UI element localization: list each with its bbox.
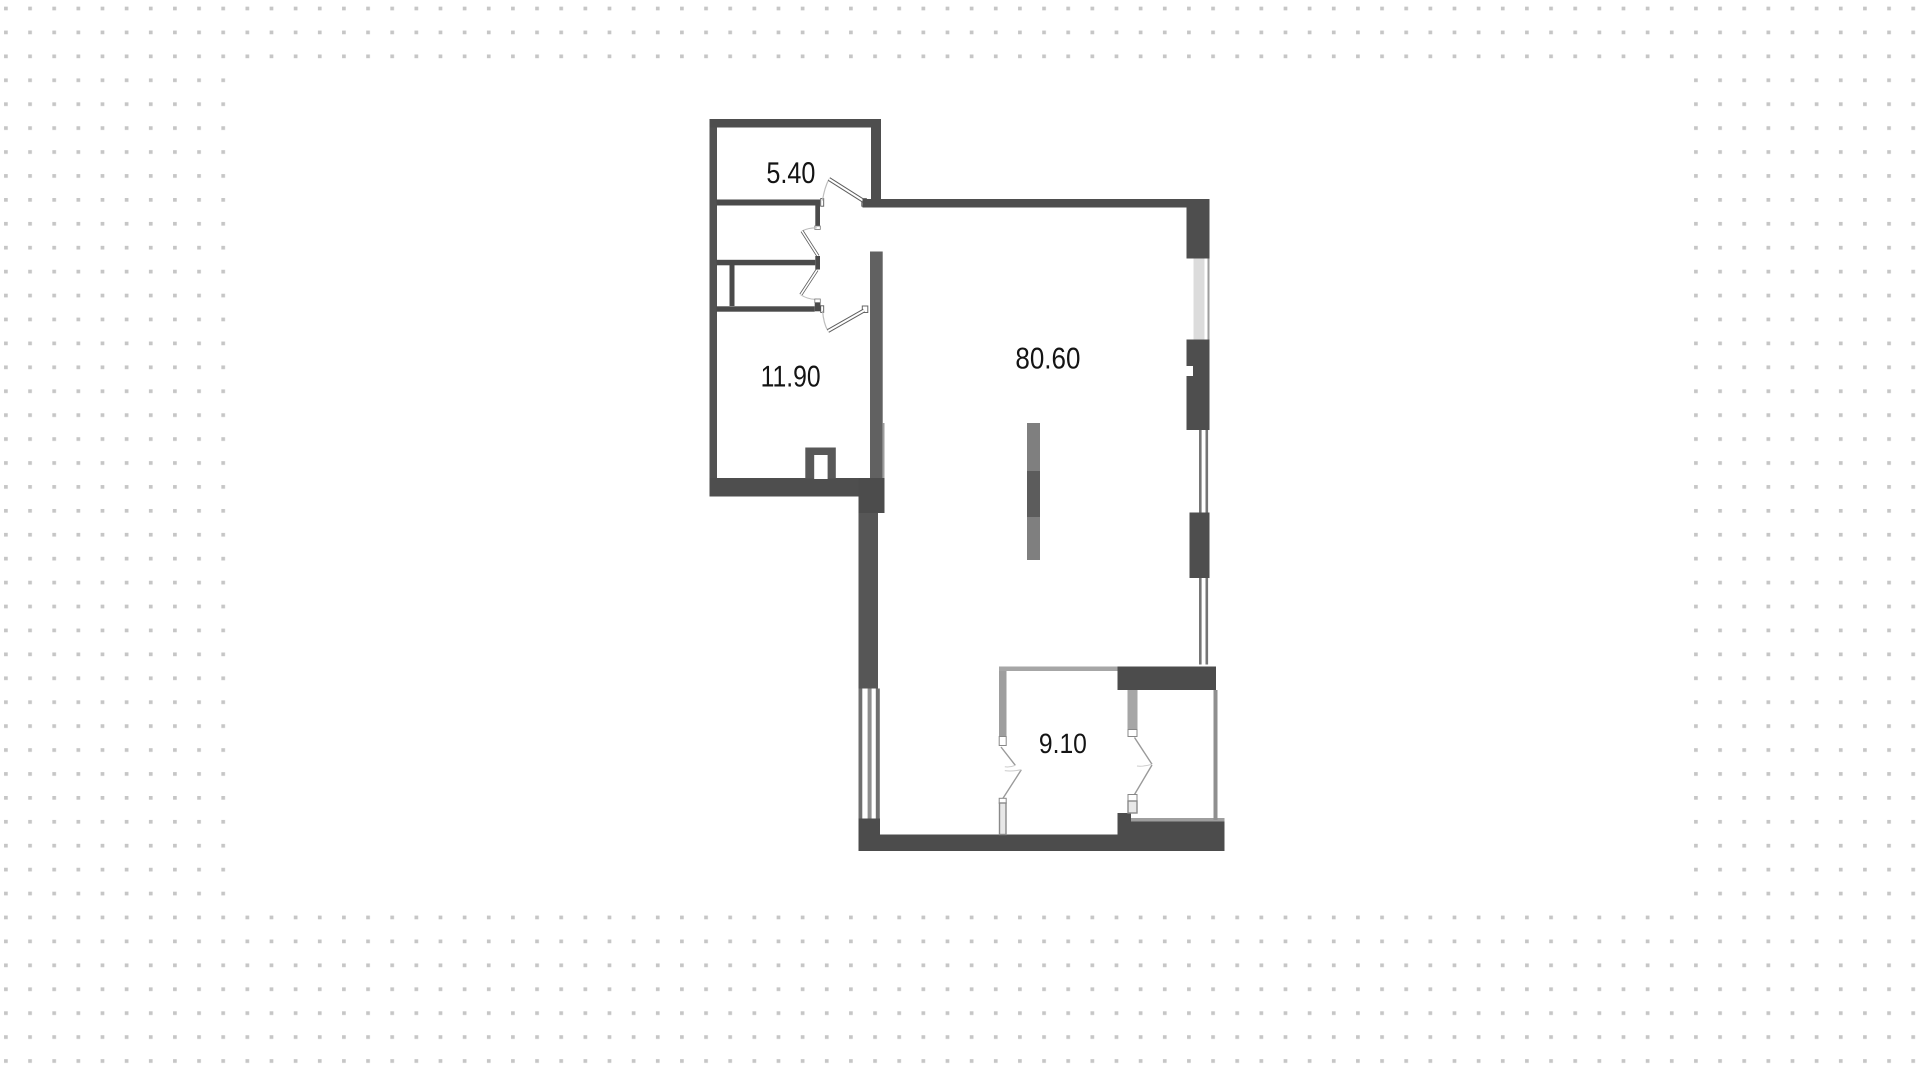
svg-text:9.10: 9.10 xyxy=(1039,728,1087,759)
svg-text:5.40: 5.40 xyxy=(766,157,815,190)
svg-text:80.60: 80.60 xyxy=(1015,343,1080,376)
svg-text:11.90: 11.90 xyxy=(761,361,821,394)
